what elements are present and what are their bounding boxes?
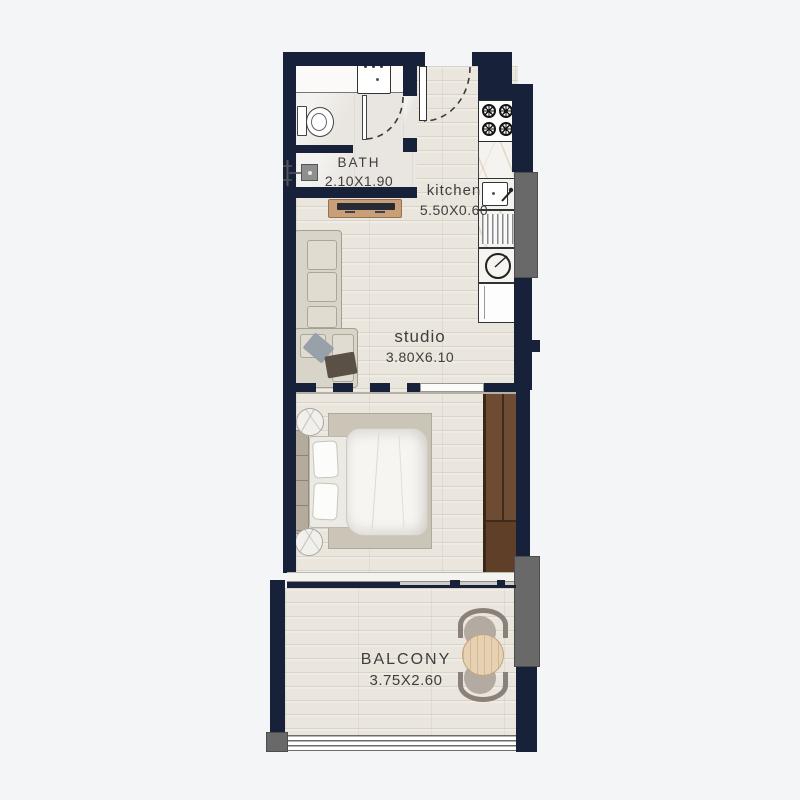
studio-room-dims: 3.80X6.10 bbox=[360, 348, 480, 366]
floor-plan: BATH 2.10X1.90 kitchen 5.50X0.60 studio … bbox=[0, 0, 800, 800]
studio-room-name: studio bbox=[360, 326, 480, 348]
sink-drain bbox=[376, 78, 379, 81]
nightstand bbox=[296, 408, 324, 436]
bath-room-dims: 2.10X1.90 bbox=[300, 172, 418, 190]
balcony-chair-back-icon bbox=[458, 608, 508, 638]
duvet-fold-line bbox=[399, 435, 405, 529]
service-duct-upper bbox=[514, 172, 538, 278]
bathroom-door-leaf bbox=[362, 95, 367, 140]
bed-duvet bbox=[346, 428, 428, 536]
wardrobe-door-divider bbox=[502, 392, 504, 520]
washing-machine bbox=[478, 248, 518, 283]
fridge bbox=[478, 283, 518, 323]
wall-bath-right-bottom bbox=[403, 138, 417, 152]
fridge-door-line bbox=[484, 286, 485, 319]
wall-entry-jog bbox=[478, 66, 512, 100]
tv-console bbox=[328, 199, 402, 218]
bed-pillow bbox=[312, 482, 339, 520]
entrance-opening bbox=[425, 52, 472, 66]
balcony-door-stop bbox=[450, 580, 460, 588]
tv-stand-leg bbox=[345, 211, 355, 213]
bed-pillow bbox=[312, 440, 339, 478]
stove-burner-icon bbox=[482, 104, 496, 118]
kitchen-label: kitchen 5.50X0.60 bbox=[404, 181, 504, 219]
balcony-door-panel bbox=[287, 582, 400, 588]
wall-balcony-left bbox=[270, 580, 285, 735]
wall-bath-right-top bbox=[403, 66, 417, 96]
wall-left bbox=[283, 52, 296, 573]
bath-room-name: BATH bbox=[300, 154, 418, 172]
balcony-door-stop bbox=[497, 580, 505, 588]
sofa-cushion bbox=[307, 240, 337, 270]
wall-top bbox=[283, 52, 512, 66]
balcony-railing bbox=[285, 735, 516, 751]
wardrobe bbox=[483, 390, 518, 573]
partition-floor-line bbox=[283, 392, 516, 394]
duvet-fold-line bbox=[372, 433, 380, 531]
wall-bath-divider bbox=[283, 145, 353, 153]
toilet-bowl-inner bbox=[311, 113, 327, 131]
tv-stand-leg bbox=[375, 211, 385, 213]
stove-burner-icon bbox=[499, 122, 513, 136]
studio-label: studio 3.80X6.10 bbox=[360, 326, 480, 366]
stove-burner-icon bbox=[482, 122, 496, 136]
stove-burner-icon bbox=[499, 104, 513, 118]
entrance-door-leaf bbox=[419, 66, 427, 121]
washer-door-icon bbox=[485, 253, 511, 279]
sofa-armrest bbox=[307, 306, 337, 328]
kitchen-room-name: kitchen bbox=[404, 181, 504, 201]
toilet-bowl bbox=[306, 107, 334, 137]
wall-right-upper bbox=[512, 84, 533, 172]
balcony-corner-pillar bbox=[266, 732, 288, 752]
balcony-label: BALCONY 3.75X2.60 bbox=[340, 650, 472, 690]
partition-solid-segment bbox=[484, 383, 516, 392]
nightstand bbox=[295, 528, 323, 556]
sofa-cushion bbox=[307, 272, 337, 302]
wall-right-lower bbox=[516, 390, 530, 573]
partition-dashed-wall bbox=[296, 383, 420, 392]
wall-right-mid bbox=[514, 278, 532, 390]
partition-sliding-door bbox=[420, 383, 484, 392]
tv-icon bbox=[337, 203, 395, 210]
balcony-room-dims: 3.75X2.60 bbox=[340, 671, 472, 691]
bath-doorway-floor bbox=[403, 96, 417, 138]
balcony-room-name: BALCONY bbox=[340, 650, 472, 671]
balcony-door-track bbox=[287, 572, 516, 582]
kitchen-room-dims: 5.50X0.60 bbox=[404, 201, 504, 219]
service-duct-lower bbox=[514, 556, 540, 667]
wall-balcony-right bbox=[516, 667, 537, 752]
bath-label: BATH 2.10X1.90 bbox=[300, 154, 418, 190]
wall-notch bbox=[532, 340, 540, 352]
